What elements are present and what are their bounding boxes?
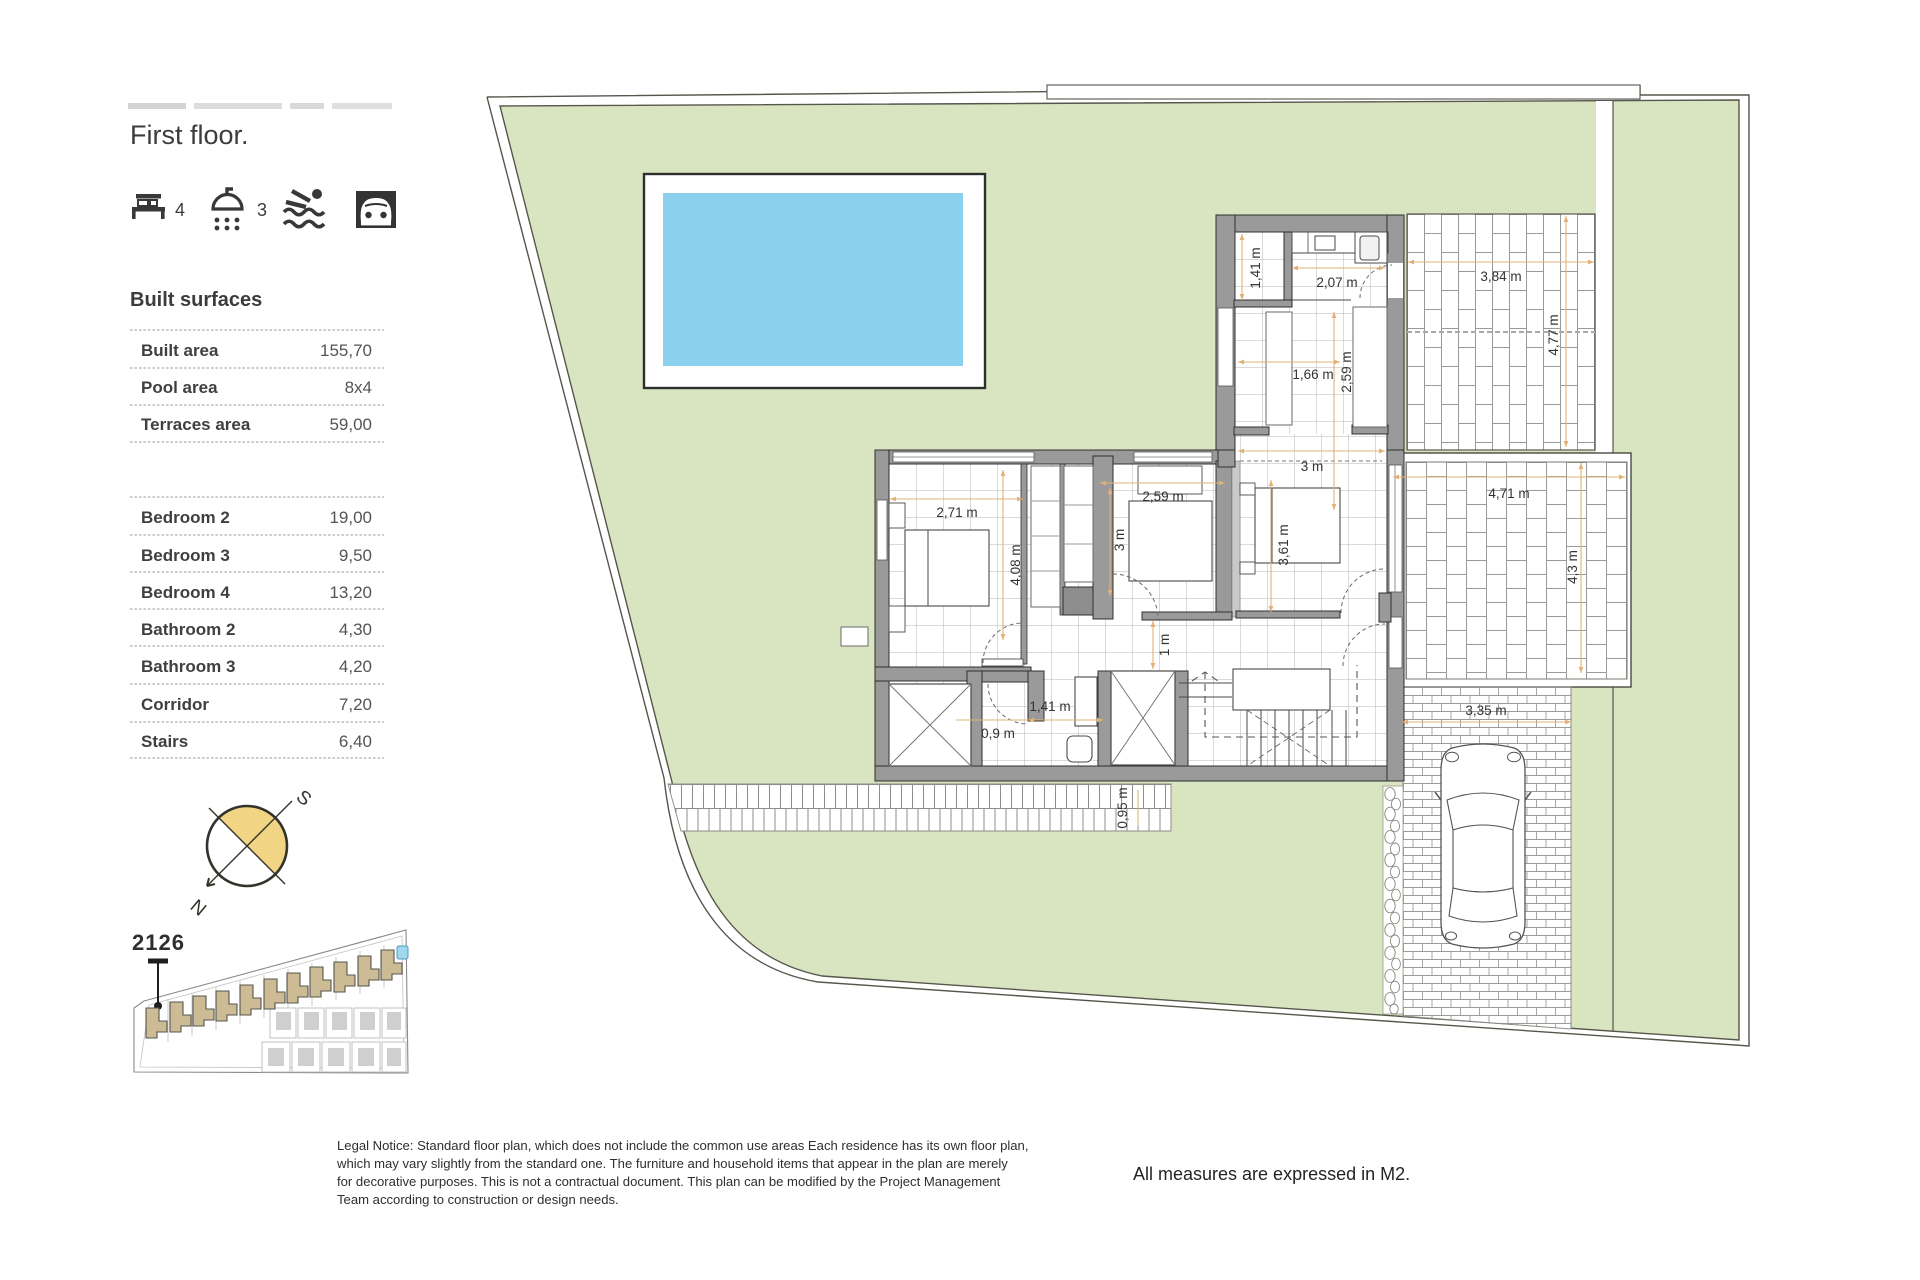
svg-text:59,00: 59,00 [329, 415, 372, 434]
svg-text:Bathroom 2: Bathroom 2 [141, 620, 235, 639]
svg-text:1,66 m: 1,66 m [1292, 367, 1333, 382]
svg-text:0,95 m: 0,95 m [1115, 787, 1130, 828]
svg-text:First floor.: First floor. [130, 120, 249, 150]
svg-text:4,77 m: 4,77 m [1546, 314, 1561, 355]
svg-text:2,59 m: 2,59 m [1142, 489, 1183, 504]
svg-text:Stairs: Stairs [141, 732, 188, 751]
svg-text:Bedroom 2: Bedroom 2 [141, 508, 230, 527]
svg-text:3,84 m: 3,84 m [1480, 269, 1521, 284]
svg-text:7,20: 7,20 [339, 695, 372, 714]
svg-text:1,41 m: 1,41 m [1029, 699, 1070, 714]
svg-text:2,71 m: 2,71 m [936, 505, 977, 520]
svg-text:3: 3 [257, 200, 267, 220]
svg-text:19,00: 19,00 [329, 508, 372, 527]
svg-text:3 m: 3 m [1301, 459, 1324, 474]
svg-text:9,50: 9,50 [339, 546, 372, 565]
svg-text:All measures are expressed in: All measures are expressed in M2. [1133, 1164, 1410, 1184]
svg-text:for decorative purposes. This: for decorative purposes. This is not a c… [337, 1174, 1001, 1189]
svg-text:4,3 m: 4,3 m [1565, 550, 1580, 584]
svg-text:Bathroom 3: Bathroom 3 [141, 657, 235, 676]
svg-text:Pool area: Pool area [141, 378, 218, 397]
svg-text:3,35 m: 3,35 m [1465, 703, 1506, 718]
svg-text:Built area: Built area [141, 341, 219, 360]
svg-text:4,20: 4,20 [339, 657, 372, 676]
svg-text:Built surfaces: Built surfaces [130, 289, 262, 311]
svg-text:Bedroom 3: Bedroom 3 [141, 546, 230, 565]
svg-text:which may vary slightly from t: which may vary slightly from the standar… [336, 1156, 1008, 1171]
svg-text:4,30: 4,30 [339, 620, 372, 639]
svg-text:2,59 m: 2,59 m [1339, 351, 1354, 392]
svg-text:Bedroom 4: Bedroom 4 [141, 583, 230, 602]
svg-text:155,70: 155,70 [320, 341, 372, 360]
svg-text:Corridor: Corridor [141, 695, 209, 714]
svg-text:0,9 m: 0,9 m [981, 726, 1015, 741]
svg-text:6,40: 6,40 [339, 732, 372, 751]
svg-text:Terraces area: Terraces area [141, 415, 251, 434]
svg-text:4: 4 [175, 200, 185, 220]
svg-text:3 m: 3 m [1112, 529, 1127, 552]
svg-text:4,71 m: 4,71 m [1488, 486, 1529, 501]
svg-text:8x4: 8x4 [345, 378, 372, 397]
svg-text:1,41 m: 1,41 m [1248, 247, 1263, 288]
svg-text:Legal Notice: Standard floor p: Legal Notice: Standard floor plan, which… [337, 1138, 1028, 1153]
svg-text:3,61 m: 3,61 m [1276, 524, 1291, 565]
svg-text:13,20: 13,20 [329, 583, 372, 602]
svg-text:Team according to construction: Team according to construction or design… [337, 1192, 619, 1207]
svg-text:4,08 m: 4,08 m [1008, 544, 1023, 585]
svg-text:1 m: 1 m [1157, 634, 1172, 657]
svg-text:2,07 m: 2,07 m [1316, 275, 1357, 290]
svg-text:2126: 2126 [132, 930, 185, 955]
